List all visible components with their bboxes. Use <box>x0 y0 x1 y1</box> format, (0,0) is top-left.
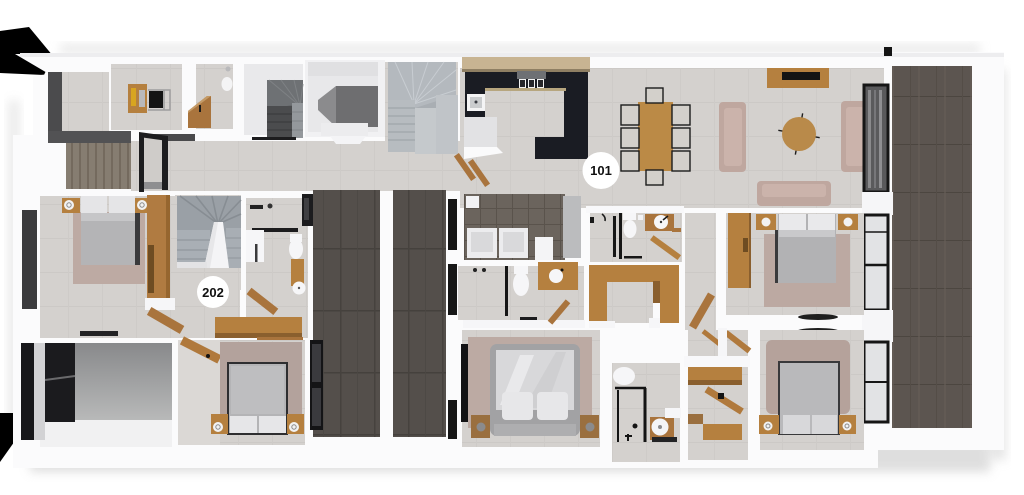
svg-text:101: 101 <box>590 163 612 178</box>
svg-text:202: 202 <box>202 285 224 300</box>
